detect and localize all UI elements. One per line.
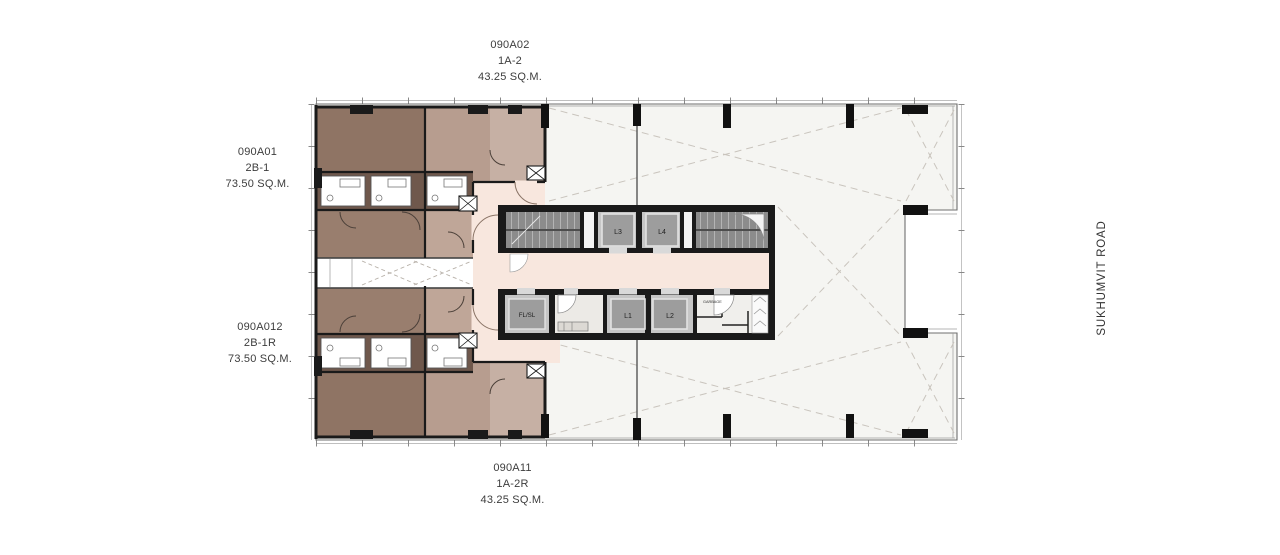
- floor-plan-page: L3 L4 FL/SL L1 L: [0, 0, 1280, 555]
- core-region: L3 L4 FL/SL L1 L: [498, 205, 775, 340]
- unit-type: 2B-1: [195, 161, 320, 177]
- service-lift: FL/SL: [505, 295, 549, 333]
- unit-label-090A01: 090A01 2B-1 73.50 SQ.M.: [195, 145, 320, 193]
- floor-plan-canvas: L3 L4 FL/SL L1 L: [0, 0, 1280, 555]
- corridor-strip: [316, 258, 480, 288]
- unit-id: 090A11: [440, 461, 585, 477]
- road-label: SUKHUMVIT ROAD: [1096, 198, 1108, 358]
- unit-area: 73.50 SQ.M.: [195, 177, 320, 193]
- unit-area: 43.25 SQ.M.: [440, 493, 585, 509]
- unit-id: 090A01: [195, 145, 320, 161]
- stairwell-left: [506, 212, 580, 248]
- vent-shaft-hatch: [752, 295, 768, 333]
- garbage-room: GARBAGE: [697, 295, 768, 333]
- service-lift-label: FL/SL: [519, 312, 536, 319]
- unit-label-090A11: 090A11 1A-2R 43.25 SQ.M.: [440, 461, 585, 509]
- elevator-l4-label: L4: [658, 229, 666, 236]
- unit-type: 2B-1R: [195, 336, 325, 352]
- bathroom-band-top: [316, 172, 473, 210]
- unit-type: 1A-2R: [440, 477, 585, 493]
- elevator-l2-label: L2: [666, 313, 674, 320]
- unit-id: 090A012: [195, 320, 325, 336]
- unit-label-090A012: 090A012 2B-1R 73.50 SQ.M.: [195, 320, 325, 368]
- garbage-room-label: GARBAGE: [703, 300, 722, 304]
- lift-vestibule: [584, 212, 594, 248]
- unit-area: 73.50 SQ.M.: [195, 352, 325, 368]
- core-corridor: [498, 253, 769, 289]
- unit-id: 090A02: [440, 38, 580, 54]
- lift-vestibule: [684, 212, 692, 248]
- stairwell-right: [696, 212, 768, 248]
- elevator-l1-label: L1: [624, 313, 632, 320]
- mep-room: [555, 295, 603, 333]
- unit-type: 1A-2: [440, 54, 580, 70]
- bathroom-band-bottom: [316, 334, 473, 372]
- unit-label-090A02: 090A02 1A-2 43.25 SQ.M.: [440, 38, 580, 86]
- unit-area: 43.25 SQ.M.: [440, 70, 580, 86]
- elevator-l3-label: L3: [614, 229, 622, 236]
- lift-bank-bottom: L1 L2: [607, 293, 693, 333]
